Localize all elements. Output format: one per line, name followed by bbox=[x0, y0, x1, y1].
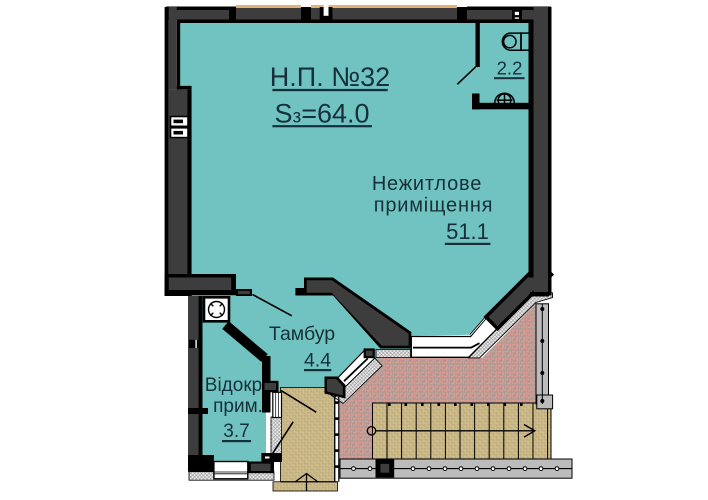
svg-text:4.4: 4.4 bbox=[304, 350, 331, 372]
svg-text:Sз=64.0: Sз=64.0 bbox=[274, 99, 369, 129]
svg-text:Тамбур: Тамбур bbox=[269, 323, 335, 345]
svg-text:приміщення: приміщення bbox=[374, 195, 494, 217]
svg-text:Відокр: Відокр bbox=[205, 375, 262, 396]
svg-text:Н.П. №32: Н.П. №32 bbox=[270, 62, 390, 92]
svg-text:51.1: 51.1 bbox=[446, 219, 489, 244]
svg-text:2.2: 2.2 bbox=[497, 58, 523, 79]
svg-text:Нежитлове: Нежитлове bbox=[372, 173, 482, 195]
svg-text:прим.: прим. bbox=[213, 396, 263, 417]
svg-text:3.7: 3.7 bbox=[223, 421, 249, 442]
